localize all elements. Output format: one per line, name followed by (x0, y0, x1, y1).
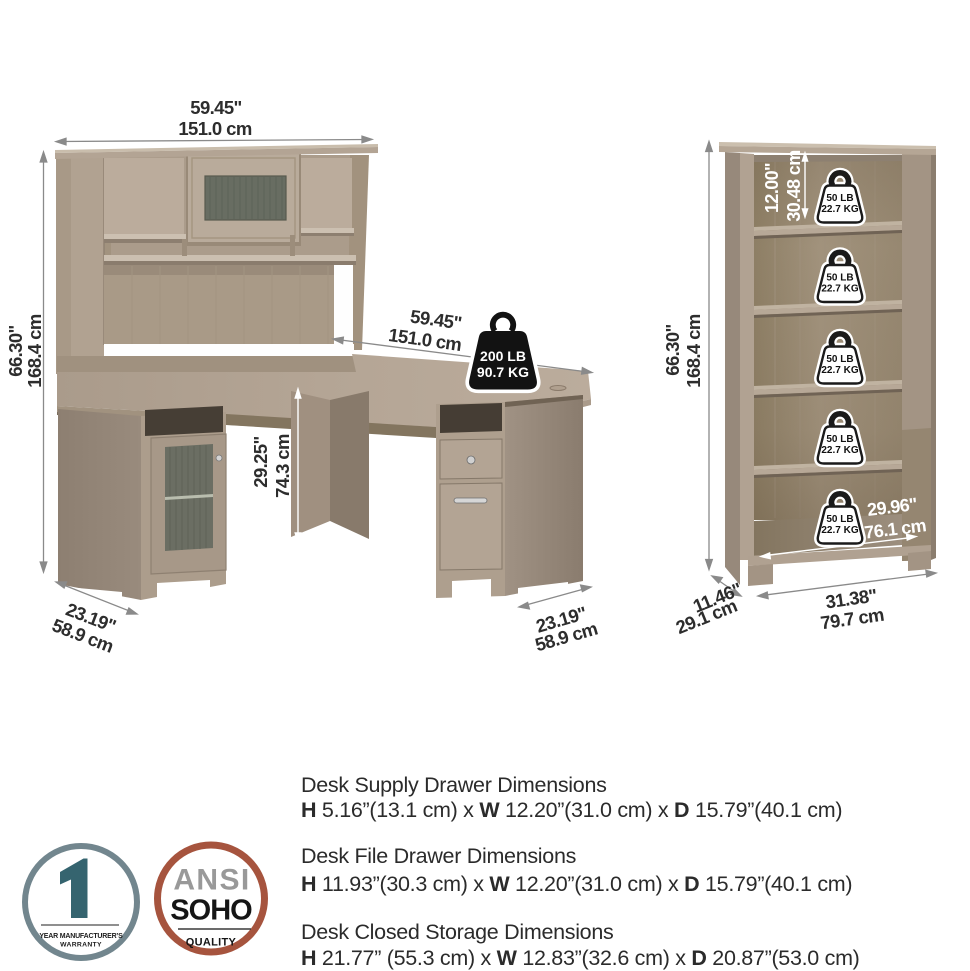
svg-text:22.7 KG: 22.7 KG (821, 525, 858, 536)
svg-text:Desk File Drawer Dimensions: Desk File Drawer Dimensions (301, 844, 576, 868)
svg-text:WARRANTY: WARRANTY (60, 942, 102, 949)
svg-text:22.7 KG: 22.7 KG (821, 284, 858, 295)
svg-text:22.7 KG: 22.7 KG (821, 365, 858, 376)
svg-text:59.45": 59.45" (190, 97, 241, 118)
svg-text:Desk Supply Drawer Dimensions: Desk Supply Drawer Dimensions (301, 773, 607, 797)
svg-text:H 21.77” (55.3 cm) x W 12.83”: H 21.77” (55.3 cm) x W 12.83”(32.6 cm) x… (301, 946, 860, 970)
svg-text:YEAR MANUFACTURER’S: YEAR MANUFACTURER’S (39, 933, 123, 940)
svg-text:50 LB: 50 LB (826, 434, 853, 445)
svg-text:66.30": 66.30" (662, 324, 683, 375)
svg-text:50 LB: 50 LB (826, 273, 853, 284)
svg-text:66.30": 66.30" (5, 325, 26, 376)
svg-text:H 11.93”(30.3 cm) x W 12.20”(: H 11.93”(30.3 cm) x W 12.20”(31.0 cm) x … (301, 872, 852, 896)
svg-text:SOHO: SOHO (170, 895, 252, 927)
svg-text:90.7 KG: 90.7 KG (477, 364, 529, 380)
svg-text:22.7 KG: 22.7 KG (821, 445, 858, 456)
svg-text:200 LB: 200 LB (480, 348, 526, 364)
svg-text:12.00": 12.00" (762, 163, 782, 213)
svg-text:50 LB: 50 LB (826, 354, 853, 365)
svg-text:29.25": 29.25" (250, 436, 271, 487)
svg-text:50 LB: 50 LB (826, 193, 853, 204)
svg-text:168.4 cm: 168.4 cm (24, 314, 45, 388)
svg-text:ANSI: ANSI (173, 864, 250, 897)
svg-text:H 5.16”(13.1 cm) x W 12.20”(3: H 5.16”(13.1 cm) x W 12.20”(31.0 cm) x D… (301, 798, 842, 822)
svg-text:151.0 cm: 151.0 cm (178, 118, 252, 139)
svg-text:50 LB: 50 LB (826, 514, 853, 525)
svg-text:30.48 cm: 30.48 cm (784, 150, 804, 221)
svg-text:74.3 cm: 74.3 cm (272, 434, 293, 498)
svg-text:QUALITY: QUALITY (186, 937, 237, 949)
svg-text:Desk Closed Storage Dimensions: Desk Closed Storage Dimensions (301, 920, 613, 944)
svg-text:22.7 KG: 22.7 KG (821, 204, 858, 215)
svg-text:168.4 cm: 168.4 cm (683, 314, 704, 388)
